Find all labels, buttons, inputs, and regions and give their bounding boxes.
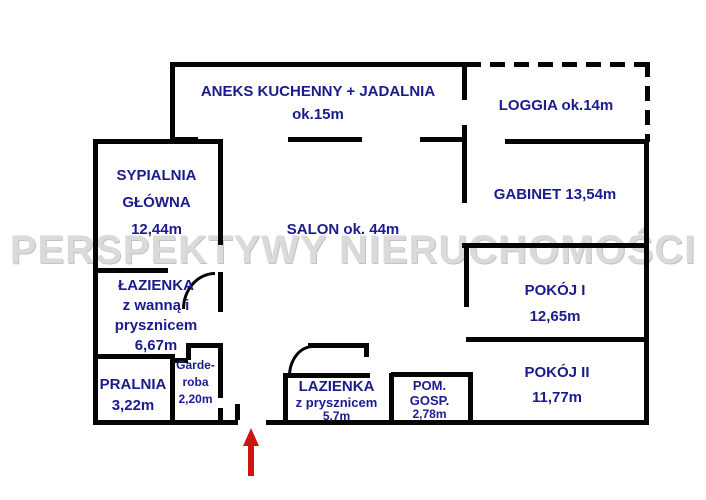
room-name: GOSP.: [391, 393, 468, 408]
room-area: 5,7m: [285, 410, 388, 423]
room-name: LAZIENKA: [285, 379, 388, 395]
room-area: 2,20m: [173, 391, 218, 408]
room-label-gabinet: GABINET 13,54m: [466, 186, 644, 203]
room-label-master-bedroom: SYPIALNIA GŁÓWNA 12,44m: [95, 162, 218, 243]
room-name: z wanną i: [95, 296, 217, 316]
room-name: GŁÓWNA: [95, 189, 218, 216]
wall-kitchen-top: [170, 62, 466, 67]
room-name: prysznicem: [95, 316, 217, 336]
wall-bath1-top: [93, 268, 168, 273]
room-name: POM.: [391, 378, 468, 393]
wall-pomgosp-top: [391, 372, 470, 377]
room-name: GABINET 13,54m: [466, 186, 644, 203]
wall-bottom-left: [93, 420, 238, 425]
room-label-pom-gosp: POM. GOSP. 2,78m: [391, 378, 468, 421]
wall-bedroom-top: [93, 139, 222, 144]
room-name: POKÓJ II: [470, 360, 644, 385]
wall-loggia-bottom: [505, 139, 646, 144]
room-area: 11,77m: [470, 385, 644, 410]
room-label-salon: SALON ok. 44m: [228, 221, 458, 238]
room-label-pokoj1: POKÓJ I 12,65m: [466, 278, 644, 330]
wall-bedroom-salon-b: [218, 272, 223, 312]
room-name: ANEKS KUCHENNY + JADALNIA: [173, 80, 463, 103]
room-area: 3,22m: [95, 395, 171, 416]
room-area: 12,44m: [95, 216, 218, 243]
wall-kitchen-bottom-b: [288, 137, 362, 142]
room-label-garderoba: Garde- roba 2,20m: [173, 357, 218, 408]
room-name: LOGGIA ok.14m: [466, 97, 646, 114]
room-name: POKÓJ I: [466, 278, 644, 304]
wall-bath2-overline-end: [364, 343, 369, 357]
wall-garderoba-right-b: [218, 408, 223, 420]
wall-bedroom-salon-a: [218, 139, 223, 245]
wall-right-outer: [644, 139, 649, 425]
wall-entrance-tick: [235, 404, 240, 420]
room-label-kitchen: ANEKS KUCHENNY + JADALNIA ok.15m: [173, 80, 463, 126]
room-label-pokoj2: POKÓJ II 11,77m: [470, 360, 644, 410]
room-name: SYPIALNIA: [95, 162, 218, 189]
floor-plan: PERSPEKTYWY NIERUCHOMOŚCI ANEKS KUCHENNY…: [0, 0, 706, 500]
room-name: Garde-: [173, 357, 218, 374]
room-name: z prysznicem: [285, 395, 388, 410]
entrance-arrow-shaft: [248, 444, 254, 476]
room-name: PRALNIA: [95, 374, 171, 395]
wall-gabinet-pokoj1: [462, 243, 644, 248]
room-label-loggia: LOGGIA ok.14m: [466, 97, 646, 114]
wall-pokoj1-pokoj2: [466, 337, 644, 342]
room-name: ŁAZIENKA: [95, 276, 217, 296]
wall-loggia-top-dashed: [466, 62, 646, 67]
door-arc-bathroom-small: [288, 345, 313, 376]
room-label-bathroom-small: LAZIENKA z prysznicem 5,7m: [285, 379, 388, 423]
room-area: 12,65m: [466, 304, 644, 330]
room-name: roba: [173, 374, 218, 391]
wall-garderoba-right-a: [218, 343, 223, 398]
wall-kitchen-bottom-c: [420, 137, 466, 142]
room-area: 2,78m: [391, 408, 468, 421]
room-area: ok.15m: [173, 103, 463, 126]
room-area: 6,67m: [95, 336, 217, 356]
room-name: SALON ok. 44m: [228, 221, 458, 238]
wall-kitchen-loggia-b: [462, 125, 467, 139]
wall-bath2-overline: [308, 343, 366, 348]
room-label-bathroom-main: ŁAZIENKA z wanną i prysznicem 6,67m: [95, 276, 217, 356]
room-label-pralnia: PRALNIA 3,22m: [95, 374, 171, 416]
